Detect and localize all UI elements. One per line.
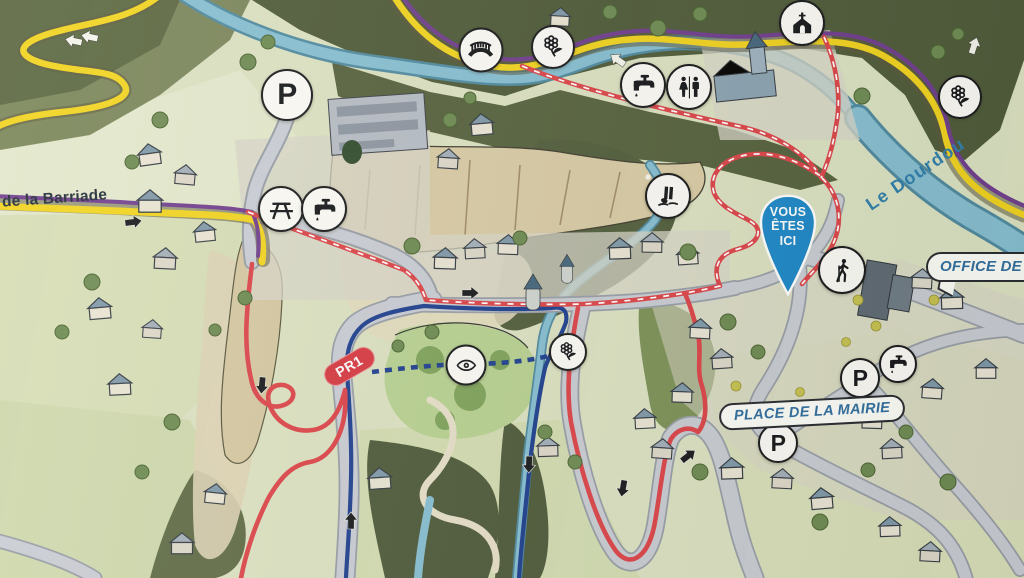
water-tap-icon [879,345,917,383]
toilets-icon [666,64,712,110]
school-building [328,93,428,156]
water-tap-icon [620,62,666,108]
water-tap-icon [301,186,347,232]
hiker-icon [818,246,866,294]
terrain-map [0,0,1024,578]
office-de-tourisme-label: OFFICE DE TOUR [926,252,1024,282]
flower-icon [531,25,575,69]
flower-icon [549,333,587,371]
picnic-table-icon [258,186,304,232]
church-icon [779,0,825,46]
waterfall-icon [645,173,691,219]
flower-icon [938,75,982,119]
parking-icon: P [840,358,880,398]
viewpoint-eye-icon [446,345,487,386]
bridge-icon [459,28,504,73]
you-are-here-label: VOUS ÊTES ICI [758,205,818,248]
you-are-here-pin: VOUS ÊTES ICI [758,194,818,296]
illustrated-trail-map: VOUS ÊTES ICI PPP de la Barriade Le Dour… [0,0,1024,578]
parking-icon: P [261,69,313,121]
parking-icon: P [758,423,798,463]
